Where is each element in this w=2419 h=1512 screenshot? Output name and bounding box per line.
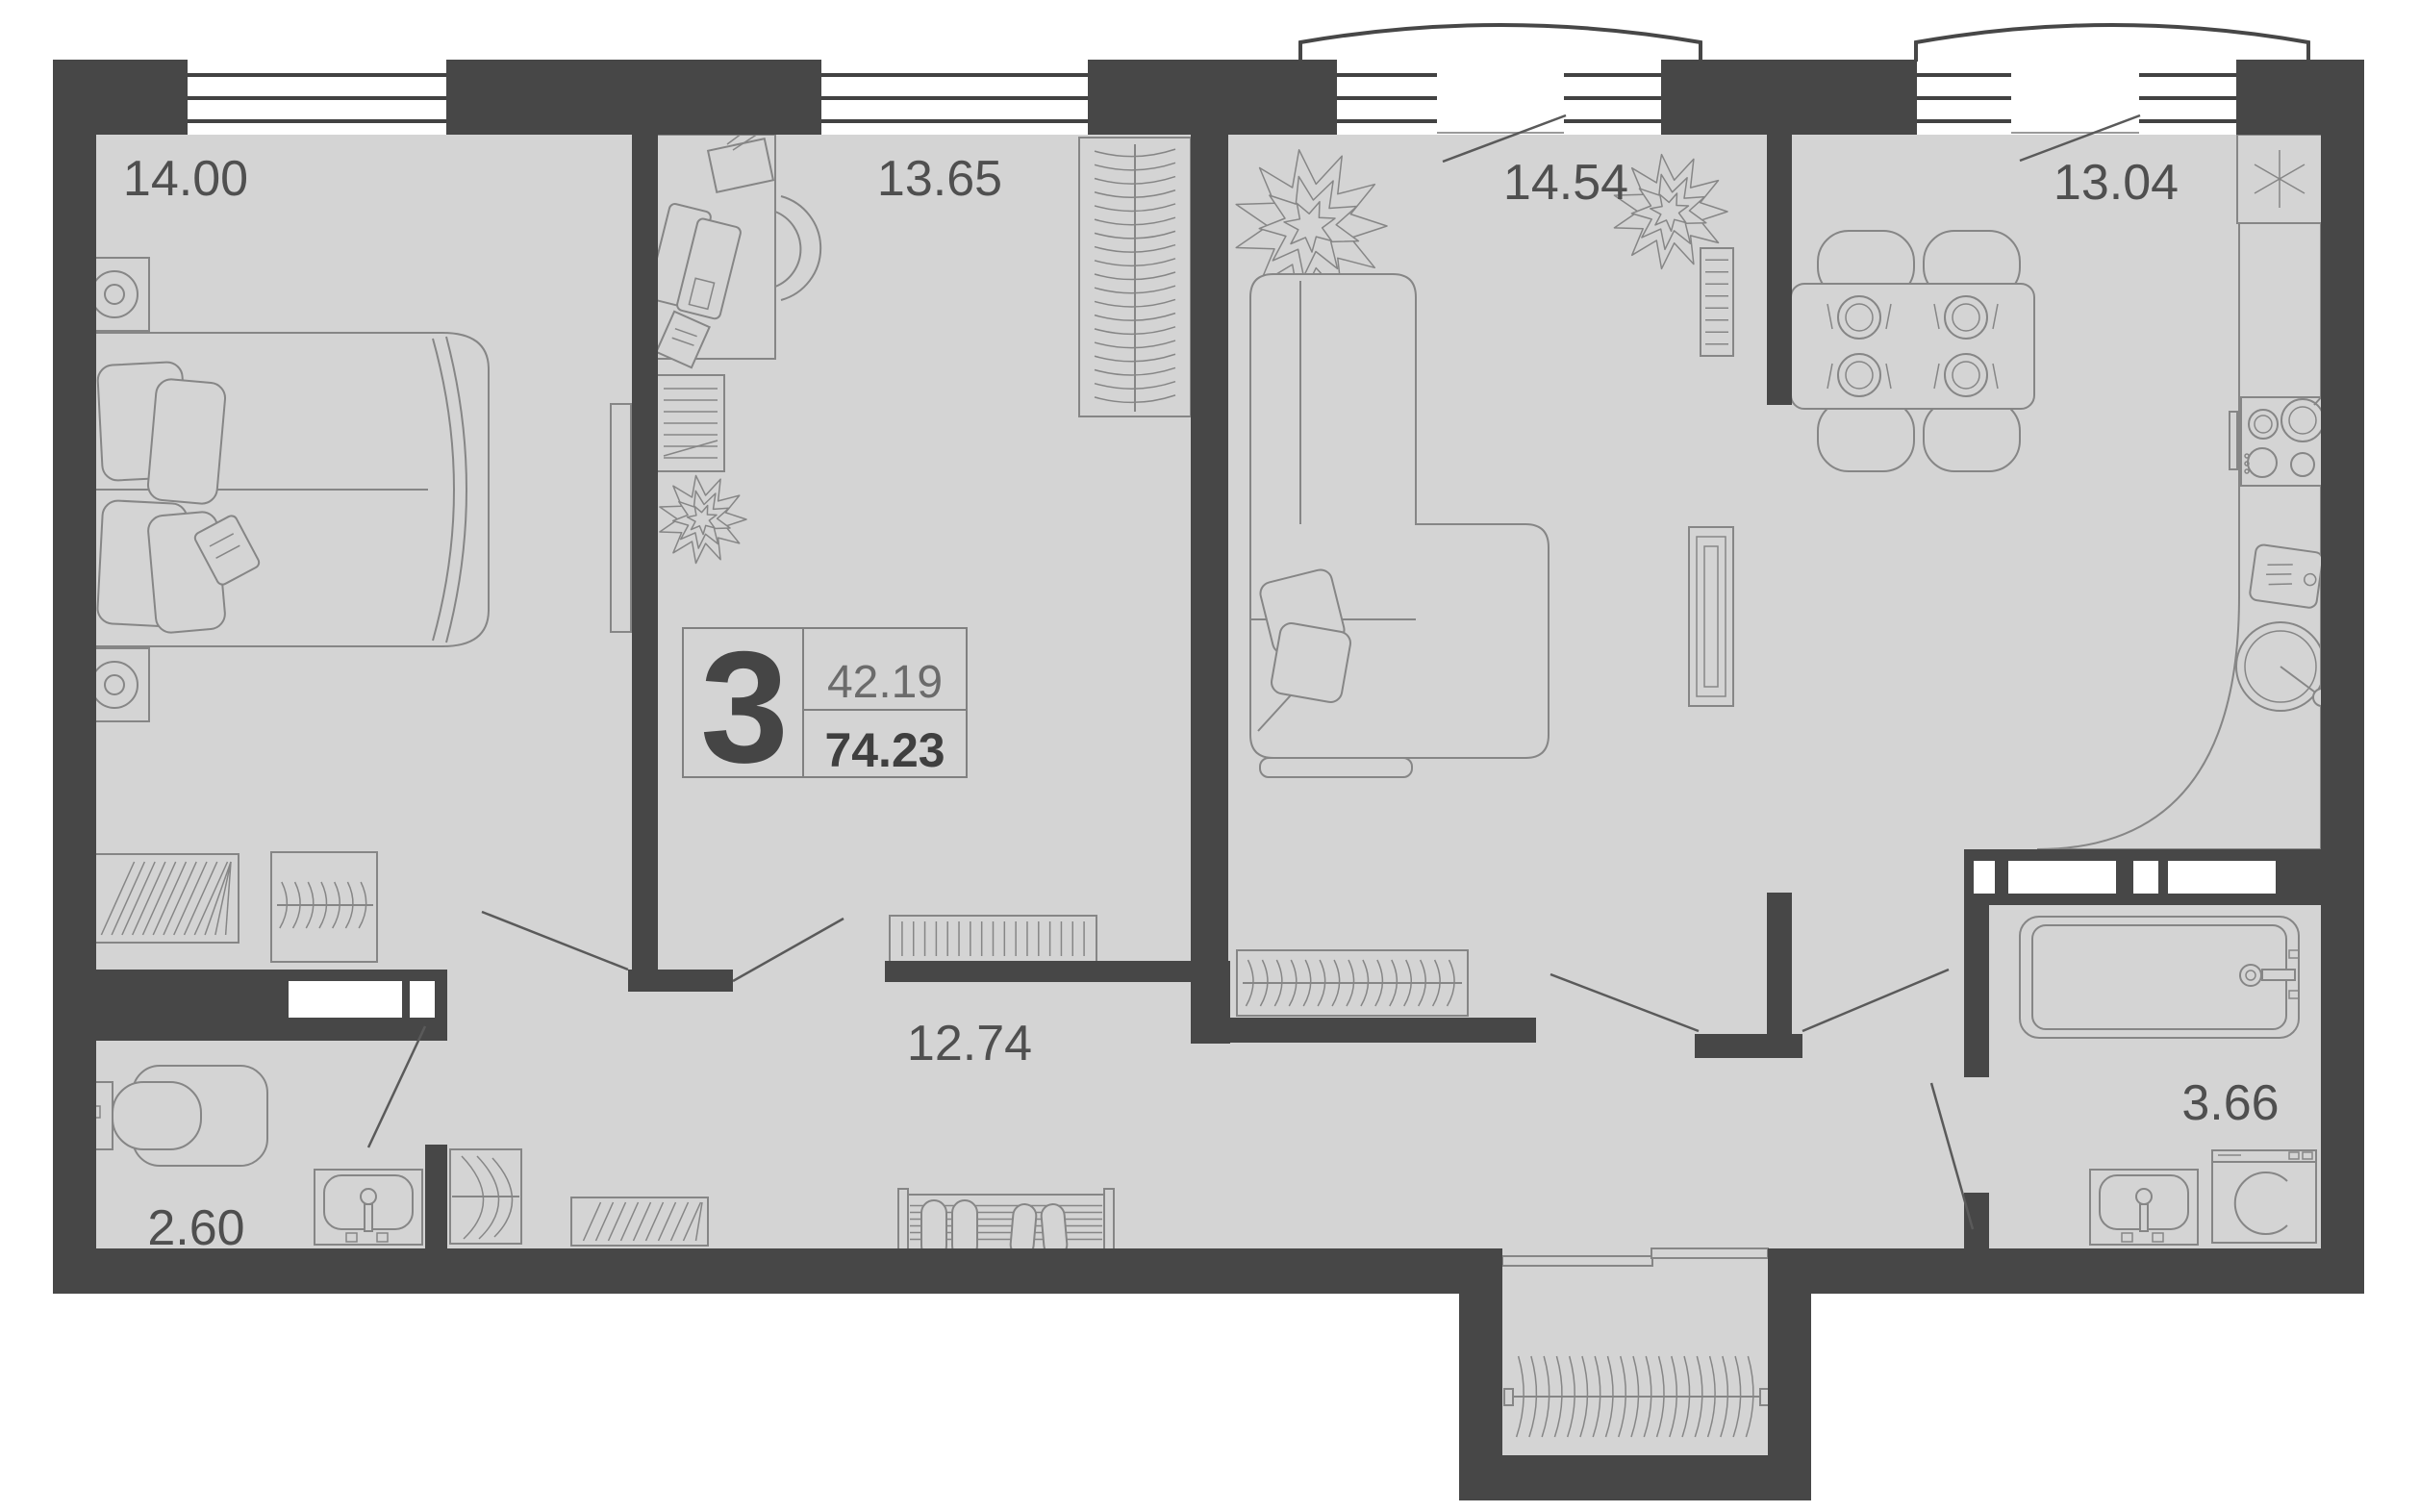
badge-living-area: 42.19 bbox=[827, 657, 943, 708]
label-wc: 2.60 bbox=[147, 1200, 244, 1256]
wall-wc-east bbox=[425, 1145, 447, 1248]
label-office: 13.65 bbox=[877, 151, 1002, 207]
balcony-railings bbox=[1300, 25, 2308, 63]
oven-handle bbox=[2230, 412, 2237, 469]
label-bedroom: 14.00 bbox=[123, 151, 248, 207]
balcony-living bbox=[1300, 25, 1701, 63]
pillow bbox=[147, 378, 227, 505]
label-bathroom: 3.66 bbox=[2181, 1075, 2279, 1131]
balcony-kitchen bbox=[1916, 25, 2308, 63]
threshold bbox=[1651, 1248, 1768, 1258]
wall-office-south bbox=[885, 961, 1192, 982]
wall-bedroom-office bbox=[632, 135, 658, 970]
wall-office-living bbox=[1191, 135, 1228, 1044]
area-badge: 3 42.19 74.23 bbox=[683, 618, 967, 795]
toilet-bowl bbox=[113, 1082, 201, 1149]
label-kitchen: 13.04 bbox=[2054, 155, 2179, 211]
threshold bbox=[1502, 1256, 1652, 1266]
tv-cabinet bbox=[1689, 527, 1733, 706]
chair bbox=[1924, 400, 2020, 471]
door-leaf bbox=[611, 404, 631, 632]
wall-bathroom-west bbox=[1964, 893, 1989, 1077]
pillow bbox=[1270, 621, 1352, 704]
wall-living-south bbox=[1230, 1018, 1536, 1043]
label-living-room: 14.54 bbox=[1503, 155, 1628, 211]
cutting-board bbox=[2249, 544, 2323, 609]
floor-plan: 14.00 13.65 14.54 13.04 12.74 2.60 3.66 … bbox=[0, 0, 2419, 1512]
dining-table bbox=[1791, 284, 2034, 409]
label-hallway: 12.74 bbox=[907, 1016, 1032, 1071]
badge-rooms-count: 3 bbox=[700, 618, 789, 795]
wall-living-kitchen bbox=[1767, 135, 1792, 405]
washing-machine bbox=[2212, 1150, 2316, 1243]
chair bbox=[1818, 400, 1914, 471]
radiator bbox=[1701, 248, 1733, 356]
badge-total-area: 74.23 bbox=[824, 723, 945, 777]
